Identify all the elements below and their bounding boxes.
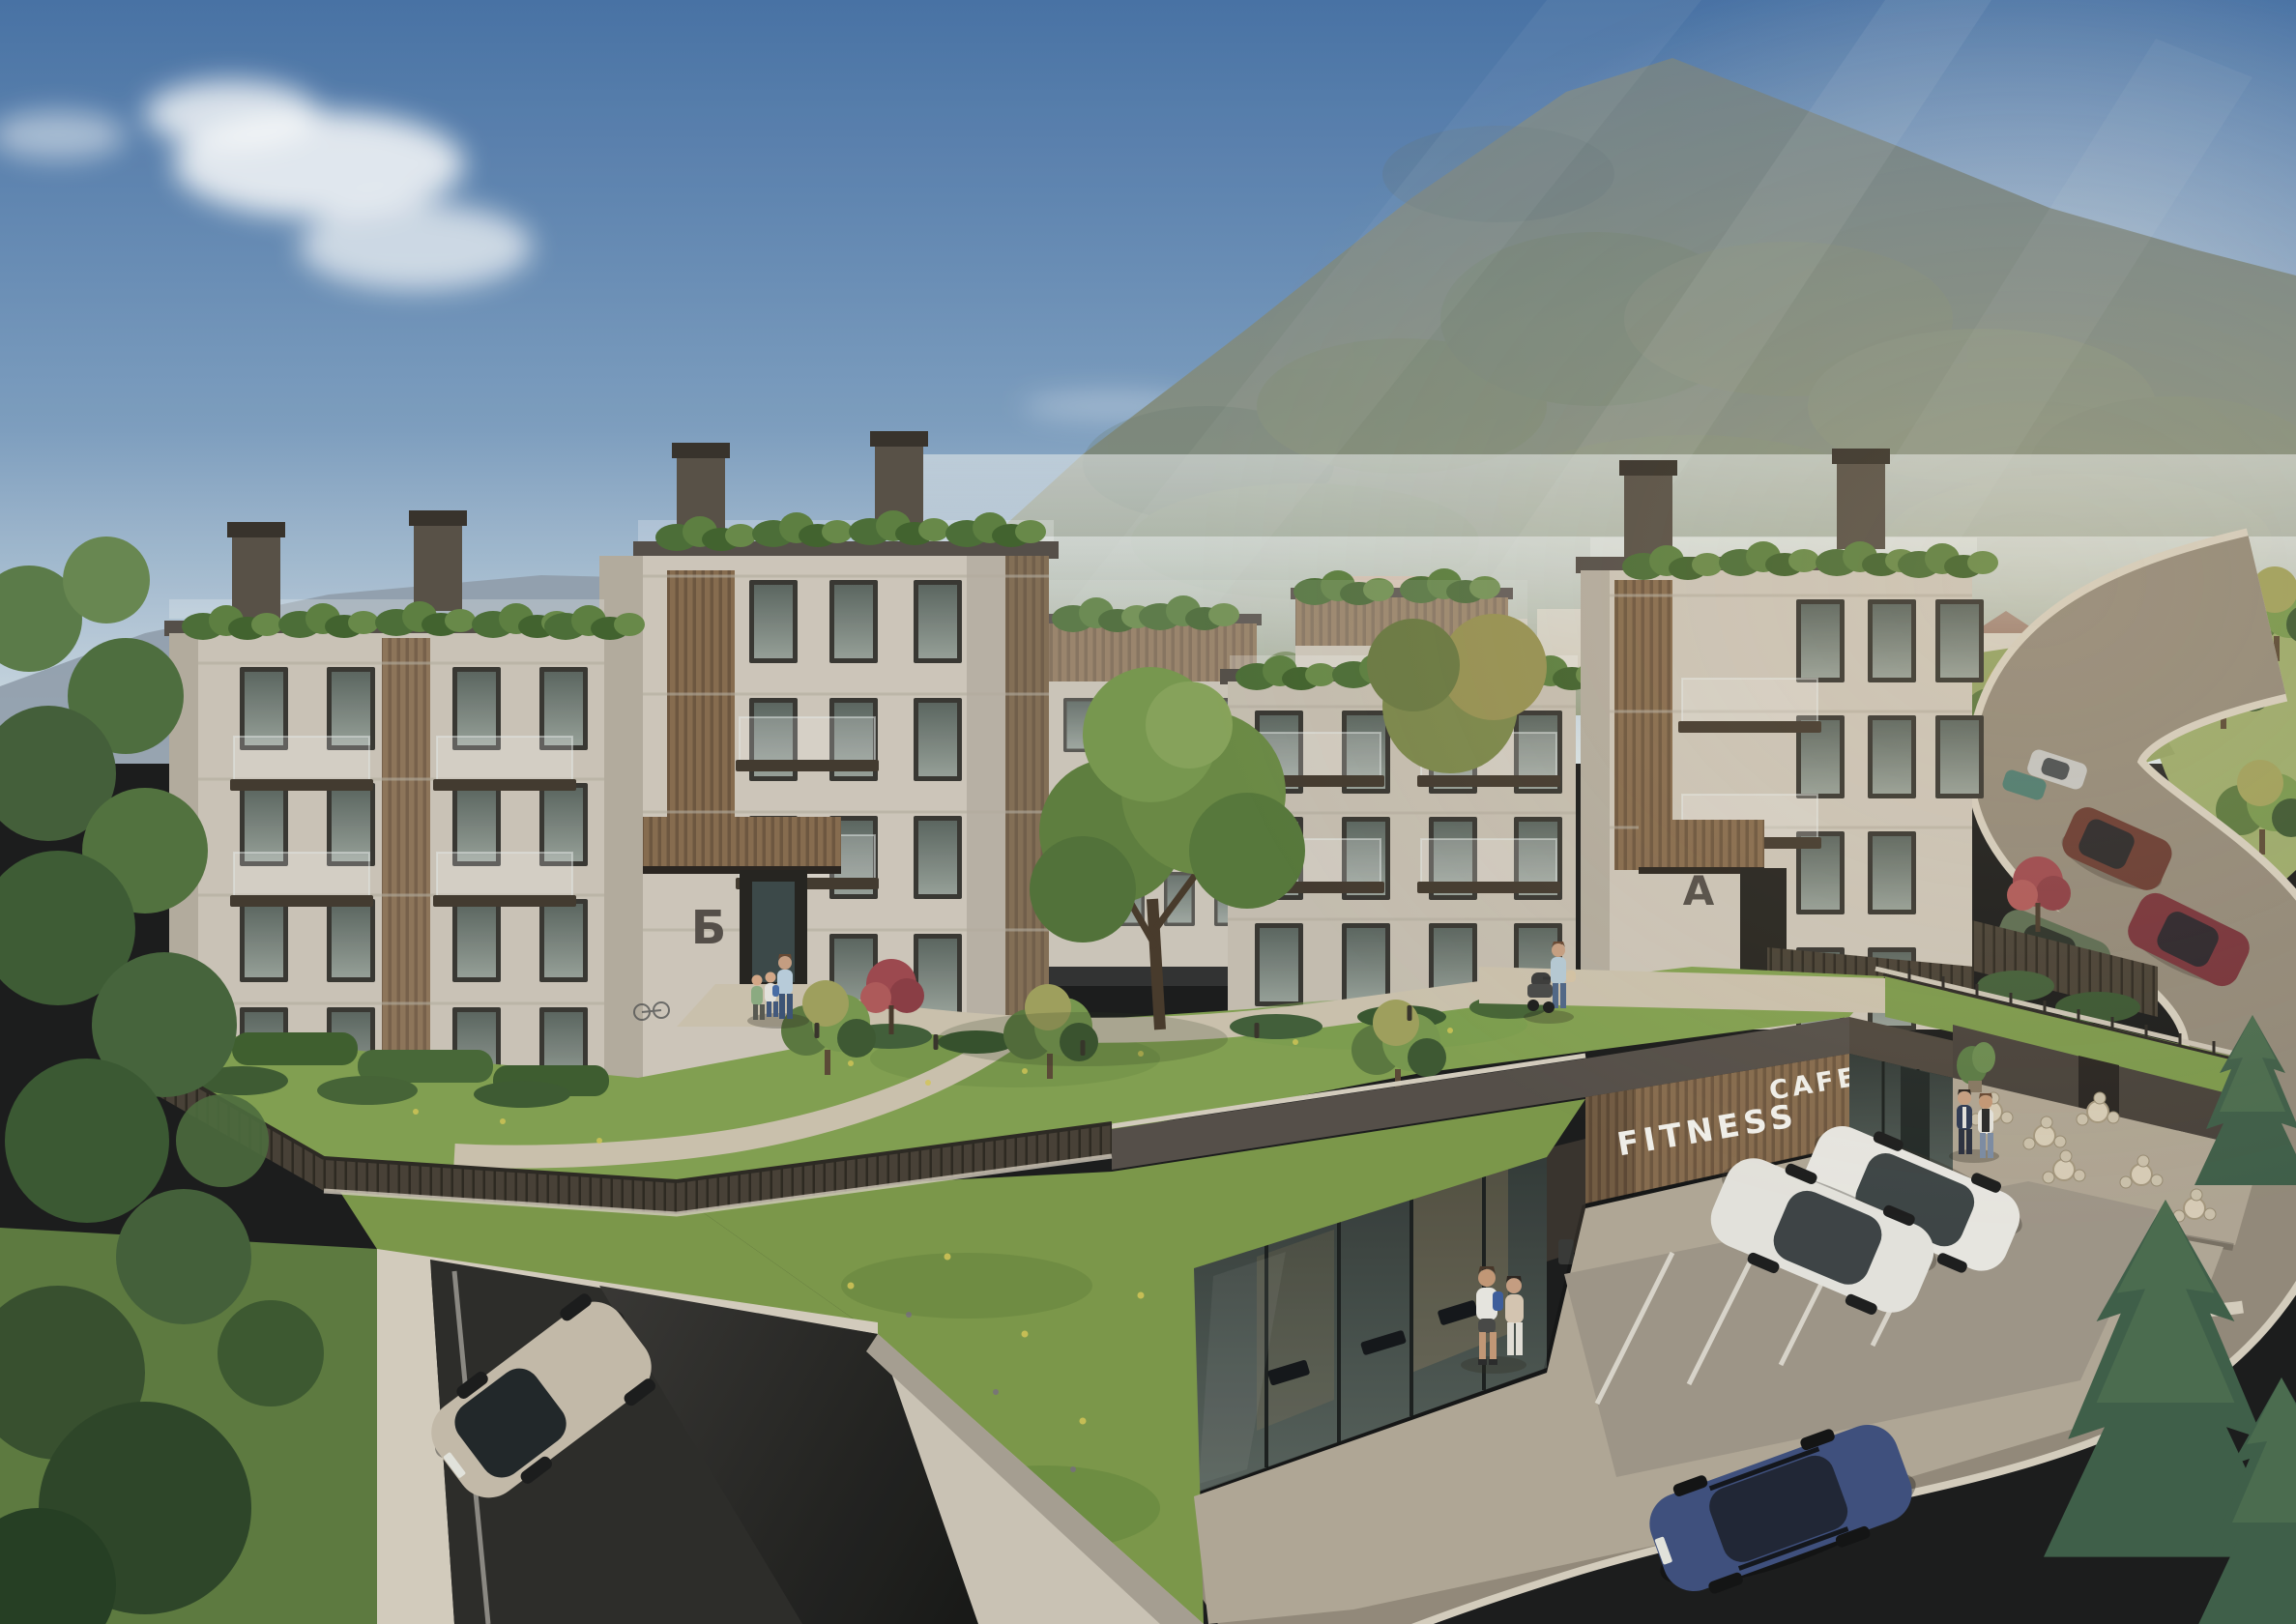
light-overlays xyxy=(0,0,2296,1624)
residential-complex-render: Б A xyxy=(0,0,2296,1624)
